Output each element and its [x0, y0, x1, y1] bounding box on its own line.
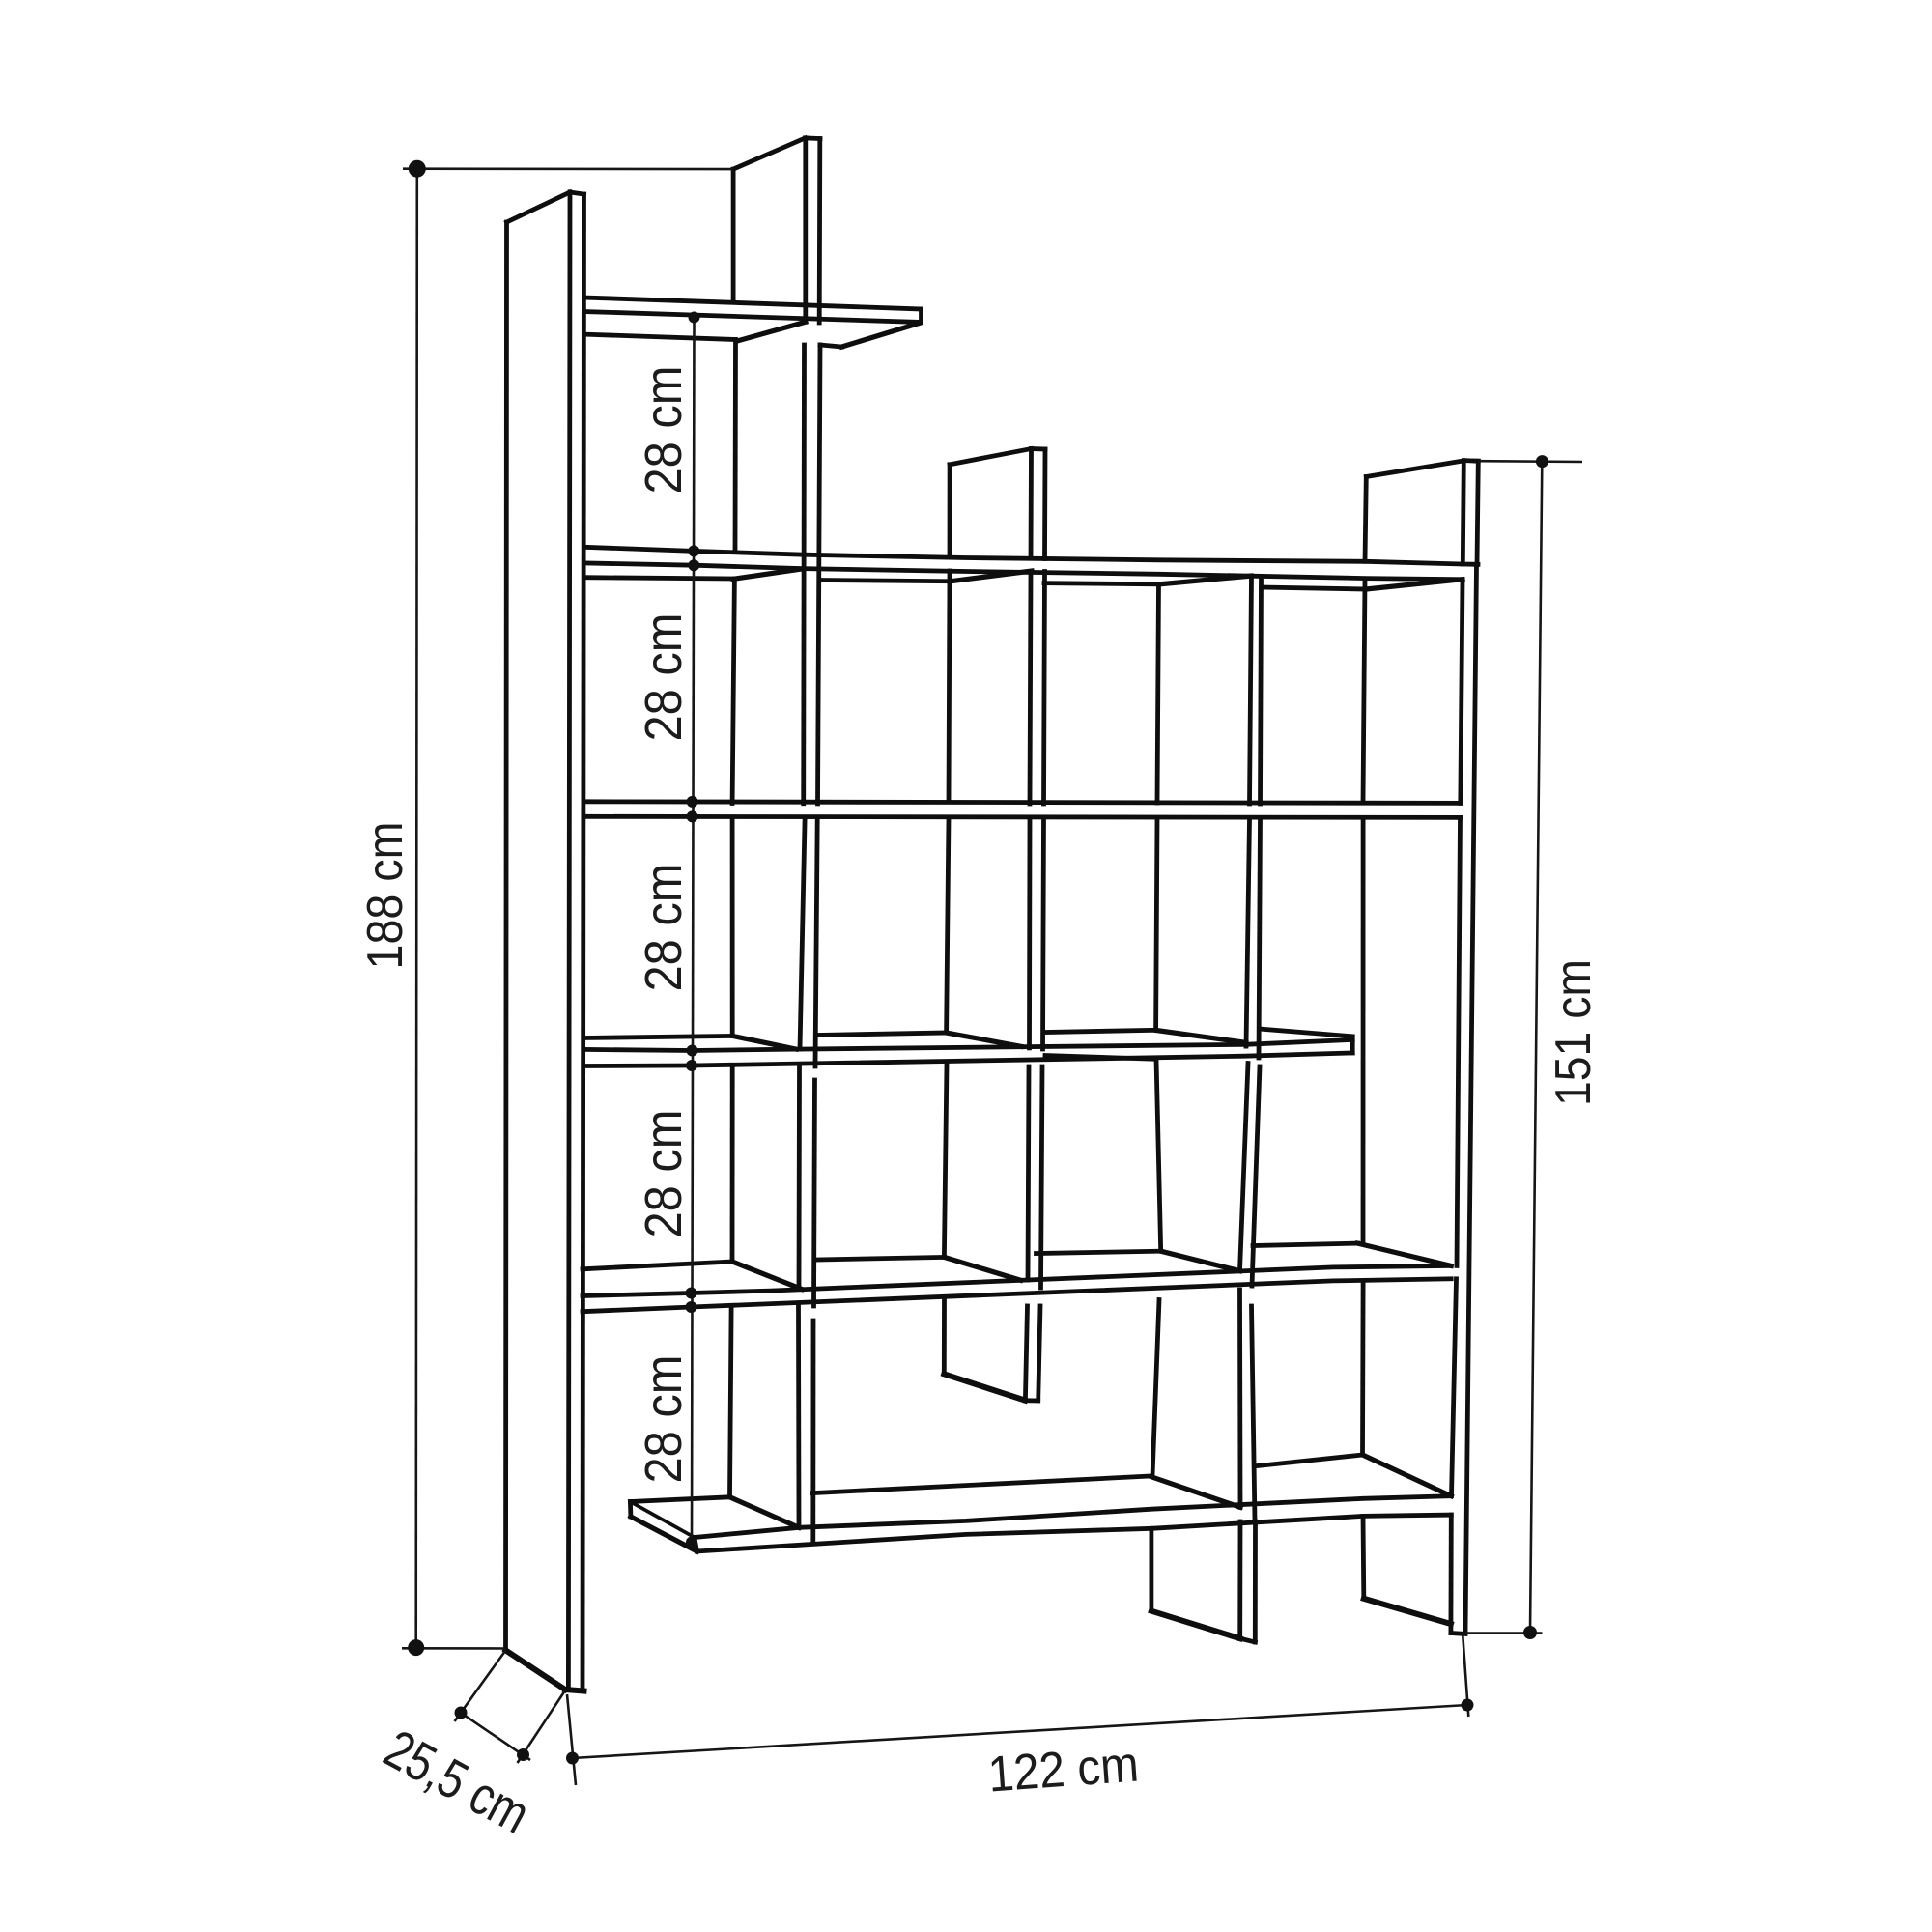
svg-text:25,5 cm: 25,5 cm [375, 1718, 540, 1845]
svg-text:28 cm: 28 cm [635, 1110, 693, 1238]
svg-text:28 cm: 28 cm [635, 1355, 693, 1484]
svg-text:28 cm: 28 cm [635, 864, 693, 992]
svg-text:188 cm: 188 cm [357, 822, 413, 970]
svg-text:28 cm: 28 cm [635, 366, 693, 495]
svg-text:28 cm: 28 cm [635, 613, 693, 742]
svg-text:151 cm: 151 cm [1546, 959, 1602, 1106]
svg-text:122 cm: 122 cm [986, 1737, 1141, 1804]
